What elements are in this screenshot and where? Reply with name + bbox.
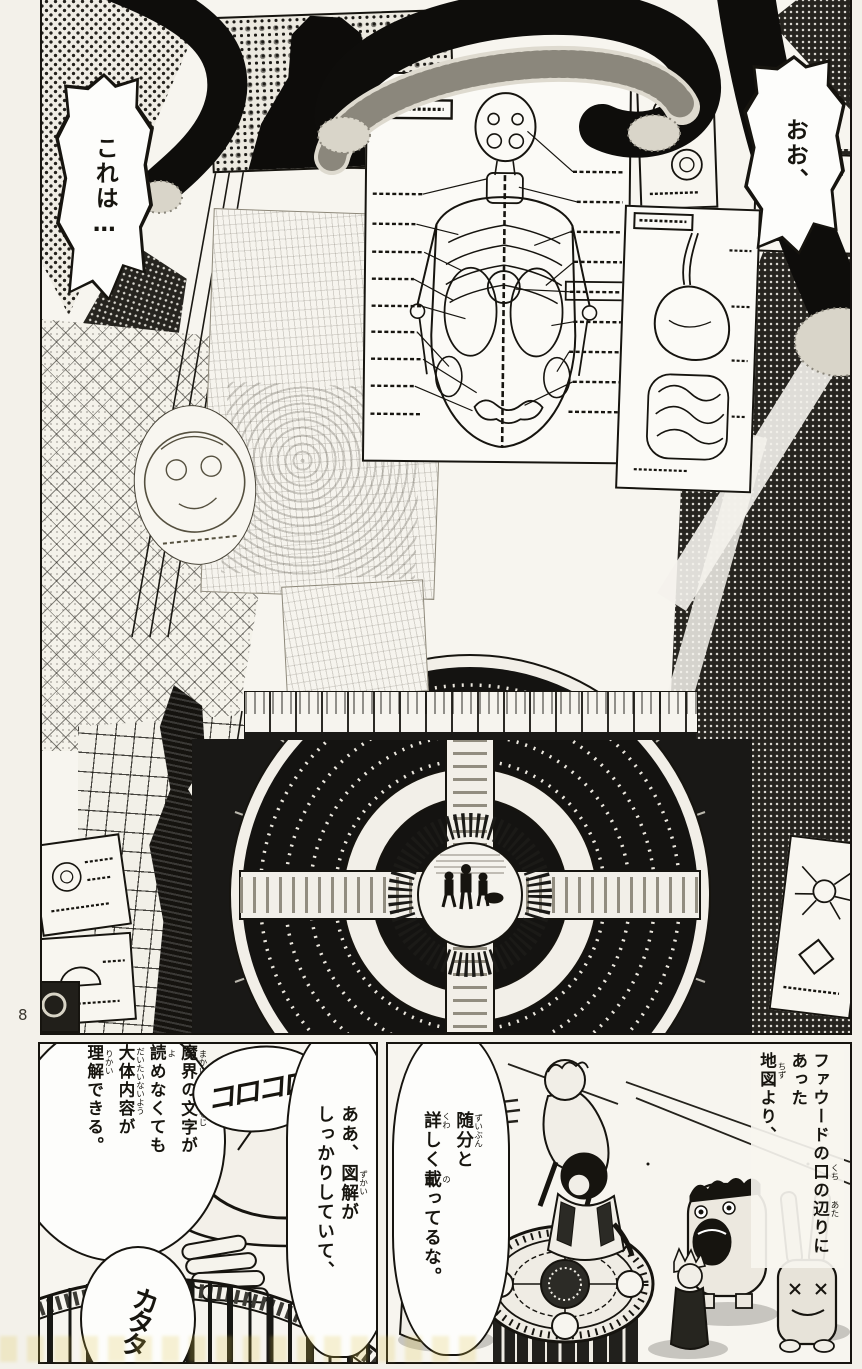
- bottom-right-panel: ファウードの口くちの辺あたりにあった 地図ちずより、 随分ずいぶんと 詳くわしく…: [386, 1042, 852, 1364]
- watermark: [0, 1336, 480, 1362]
- bubble-text: 随分ずいぶんと 詳くわしく載のってるな。: [394, 1042, 508, 1360]
- manga-page: これは… おお、 8: [0, 0, 862, 1369]
- dark-corner-tile: [40, 981, 80, 1033]
- caption-line: 地図ちずより、: [756, 1052, 786, 1264]
- caption-line: ファウードの口くちの辺あたりにあった: [787, 1052, 839, 1264]
- speech-bubble-zuibun: 随分ずいぶんと 詳くわしく載のってるな。: [392, 1042, 510, 1356]
- frieze-band: [244, 691, 698, 733]
- face-diagram-chart: [126, 399, 264, 571]
- top-panel: これは… おお、: [40, 0, 852, 1035]
- speech-bubble-zukai: ああ、図解ずかいが しっかりしていて、: [286, 1042, 378, 1358]
- bottom-left-panel: 魔界まかいの文字もじが 読よめなくても 大体内容だいたいないようが 理解りかいで…: [38, 1042, 378, 1364]
- narration-caption: ファウードの口くちの辺あたりにあった 地図ちずより、: [751, 1048, 844, 1268]
- digestive-chart: [615, 205, 761, 494]
- bubble-text: 魔界まかいの文字もじが 読よめなくても 大体内容だいたいないようが 理解りかいで…: [82, 1044, 208, 1240]
- small-ear-chart: [636, 70, 719, 211]
- small-wall-chart-1: [40, 833, 132, 937]
- small-sheet-chart: [281, 579, 429, 698]
- main-anatomy-chart: [362, 72, 632, 465]
- frieze-dark-strip: [244, 732, 696, 740]
- page-number: 8: [18, 1006, 28, 1024]
- bubble-text: ああ、図解ずかいが しっかりしていて、: [288, 1042, 378, 1356]
